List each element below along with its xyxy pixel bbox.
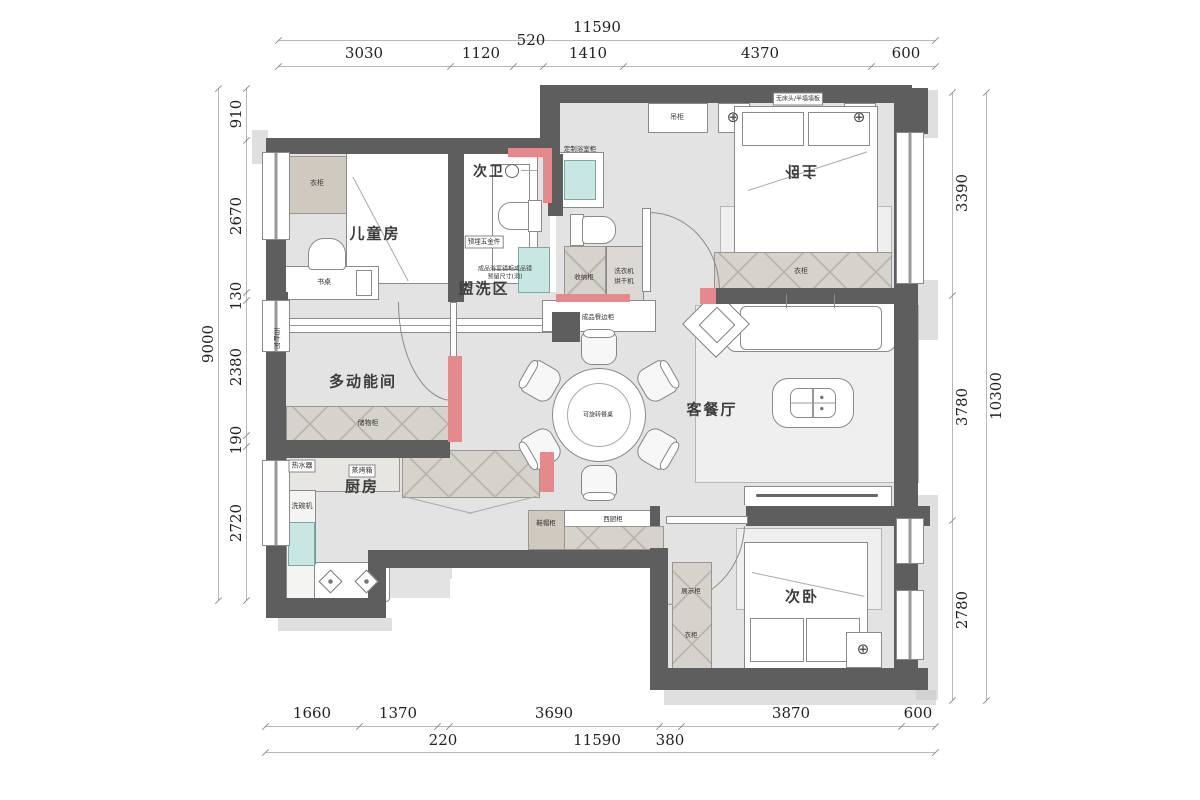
wall-south-mid	[386, 550, 668, 568]
dim-tick	[932, 37, 939, 44]
dim-tick	[983, 697, 990, 704]
blinds-label: 百叶帘	[272, 328, 282, 349]
toilet-2-bowl	[582, 216, 616, 244]
dim-tick	[215, 597, 222, 604]
wardrobe-master-label: 衣柜	[794, 266, 808, 276]
tv-console	[744, 486, 892, 508]
dim-left-segment-5: 2720	[227, 504, 245, 542]
washer-label-2: 烘干机	[614, 275, 634, 285]
tv-line	[756, 494, 878, 497]
dim-tick	[932, 63, 939, 70]
dim-top-segment-2: 520	[517, 31, 546, 49]
room-label-multi: 多动能间	[329, 371, 397, 392]
dim-top-segment-3: 1410	[569, 44, 607, 62]
wall-red-shower-side	[543, 155, 552, 203]
dining-chair	[581, 333, 617, 365]
dishwasher-label: 洗碗机	[292, 501, 313, 511]
storage-wash-label: 收纳柜	[574, 271, 594, 281]
dim-line-bottom-total	[265, 752, 935, 753]
floor-plan-canvas: 衣柜 书桌 儿童房 储物柜 百叶帘 多动能间 热水器 蒸烤箱 洗碗机 厨房 定制…	[0, 0, 1200, 800]
wall-master-south	[716, 288, 912, 304]
window-bed2-b	[896, 590, 924, 660]
dim-bottom-r1-0: 1660	[293, 704, 331, 722]
display-cabinet-label: 展示柜	[681, 585, 701, 595]
dim-line-left-total	[218, 88, 219, 600]
sofa-seat	[740, 306, 882, 350]
desk-chair	[308, 238, 346, 270]
dim-right-segment-1: 3780	[953, 388, 971, 426]
dim-line-top-segments	[278, 66, 935, 67]
water-heater-label: 热水器	[289, 460, 316, 473]
room-label-children: 儿童房	[349, 223, 400, 244]
dim-top-segment-4: 4370	[741, 44, 779, 62]
dining-chair	[581, 465, 617, 497]
toilet-1-tank	[528, 200, 542, 232]
wall-red-master-south	[700, 288, 716, 304]
window-kitchen	[262, 460, 290, 546]
door-leaf-master	[642, 208, 651, 292]
dim-bottom-r2-1: 11590	[573, 731, 621, 749]
dim-left-segment-1: 2670	[227, 197, 245, 235]
room-label-living: 客餐厅	[686, 399, 737, 420]
shower-arm	[521, 170, 537, 171]
dim-bottom-r1-4: 600	[904, 704, 933, 722]
dim-tick	[932, 749, 939, 756]
vanity-sink	[564, 160, 596, 200]
display-wardrobe-bed2	[672, 562, 712, 672]
room-label-kitchen: 厨房	[345, 476, 379, 497]
dim-line-left-segments	[246, 88, 247, 600]
dim-right-segment-0: 3390	[953, 174, 971, 212]
dim-top-segment-1: 1120	[462, 44, 500, 62]
dim-bottom-r1-1: 1370	[379, 704, 417, 722]
room-label-wash: 盥洗区	[458, 278, 509, 299]
embedded-hardware-label: 预埋五金件	[465, 236, 504, 249]
wall-multi-south	[266, 440, 450, 458]
dim-left-segment-2: 130	[227, 282, 245, 311]
dim-tick	[243, 597, 250, 604]
sideboard-label: 成品餐边柜	[582, 311, 615, 321]
dim-tick	[949, 697, 956, 704]
sofa-cushion-divider	[834, 294, 835, 308]
wall-top-right	[540, 85, 912, 103]
dining-table-label: 可旋转餐桌	[583, 410, 613, 419]
dim-line-bottom-segments	[265, 726, 935, 727]
coffee-table-inner	[790, 388, 836, 418]
dim-right-segment-2: 2780	[953, 591, 971, 629]
ceiling-light-icon: ⊕	[727, 108, 740, 126]
washer-label-1: 洗衣机	[614, 265, 634, 275]
shoe-cabinet-label: 鞋帽柜	[536, 517, 556, 527]
wardrobe-second-label: 衣柜	[685, 629, 698, 639]
dim-bottom-r2-0: 220	[429, 731, 458, 749]
ceiling-light-icon: ⊕	[857, 640, 870, 658]
dim-bottom-r2-2: 380	[656, 731, 685, 749]
dim-top-segment-5: 600	[892, 44, 921, 62]
door-leaf-bed2	[666, 516, 748, 524]
dim-bottom-r1-3: 3870	[772, 704, 810, 722]
dim-left-segment-0: 910	[227, 100, 245, 129]
west-kitchen-cabinet-base	[564, 526, 664, 550]
window-bed2-a	[896, 518, 924, 564]
dim-top-segment-0: 3030	[345, 44, 383, 62]
wall-shadow	[278, 618, 392, 631]
window-master	[896, 132, 924, 284]
wall-red-laundry	[556, 294, 630, 302]
wall-block-bath-south	[552, 312, 580, 342]
wall-shadow	[916, 280, 938, 340]
sofa-cushion-divider	[786, 294, 787, 308]
storage-multi-label: 储物柜	[358, 418, 379, 428]
hanging-cabinet-label: 吊柜	[670, 112, 684, 122]
wall-red-kitchen	[540, 452, 554, 492]
room-label-bath2: 次卫	[473, 161, 505, 181]
dim-top-total: 11590	[573, 18, 621, 36]
wall-bottom-bed2	[650, 668, 928, 690]
room-label-master: 主卧	[783, 162, 817, 183]
dim-left-total: 9000	[199, 325, 217, 363]
kitchen-sink	[288, 522, 315, 566]
shoe-cabinet	[528, 510, 566, 550]
vanity-label: 定制浴室柜	[564, 143, 597, 153]
toilet-1-bowl	[498, 202, 532, 230]
room-label-bed2: 次卧	[785, 586, 819, 607]
dim-tick	[932, 723, 939, 730]
pillow-master	[742, 112, 804, 146]
desk-label: 书桌	[317, 277, 331, 287]
window-children	[262, 152, 290, 240]
dim-line-top-total	[278, 40, 935, 41]
pillow-second	[750, 618, 804, 662]
shower-icon	[505, 164, 519, 178]
no-headboard-label: 无床头/半墙墙板	[773, 93, 823, 106]
wardrobe-children-label: 衣柜	[310, 178, 324, 188]
dim-right-total: 10300	[987, 372, 1005, 420]
desk-books	[356, 270, 372, 296]
dim-left-segment-4: 190	[227, 426, 245, 455]
wall-shadow	[664, 690, 936, 705]
ceiling-light-icon: ⊕	[853, 108, 866, 126]
dim-left-segment-3: 2380	[227, 348, 245, 386]
wall-red-multi-east	[448, 356, 462, 442]
dim-bottom-r1-2: 3690	[535, 704, 573, 722]
west-kitchen-label: 西厨柜	[603, 513, 623, 523]
